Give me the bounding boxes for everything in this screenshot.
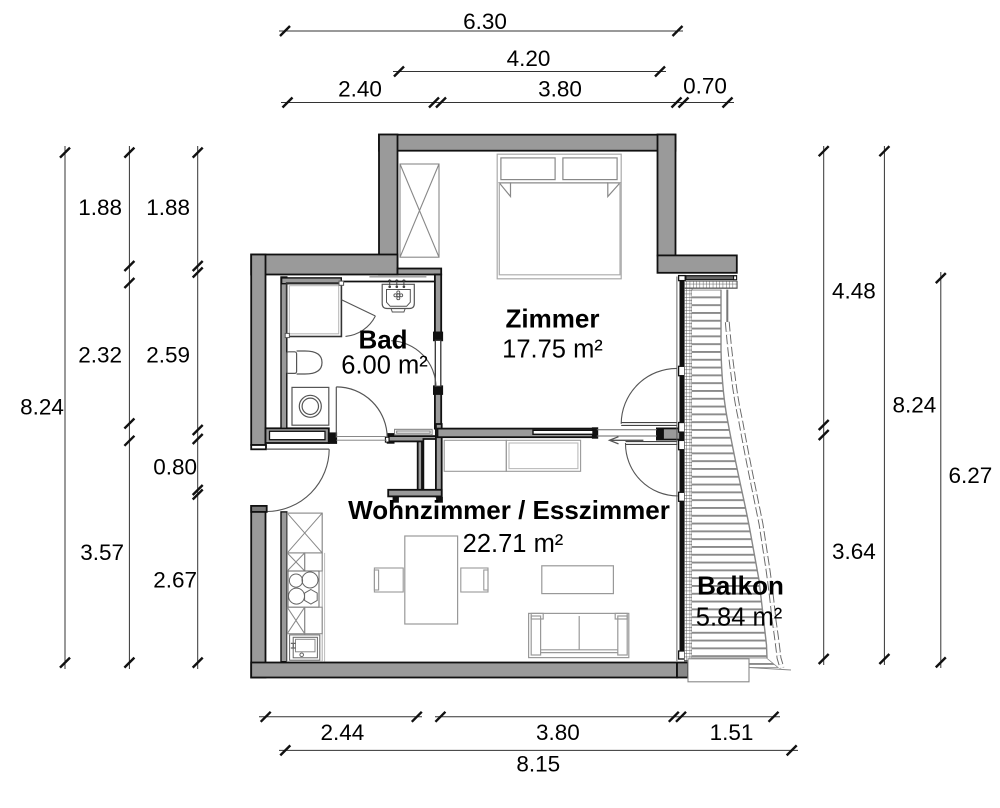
svg-text:1.51: 1.51: [710, 720, 754, 745]
svg-text:1.88: 1.88: [146, 195, 190, 220]
svg-text:2.40: 2.40: [338, 77, 382, 102]
svg-text:6.27: 6.27: [949, 463, 993, 488]
svg-text:22.71 m²: 22.71 m²: [463, 530, 564, 558]
svg-text:4.20: 4.20: [507, 46, 551, 71]
svg-text:3.57: 3.57: [80, 540, 124, 565]
svg-text:Wohnzimmer / Esszimmer: Wohnzimmer / Esszimmer: [348, 495, 670, 525]
svg-text:1.88: 1.88: [78, 195, 122, 220]
svg-text:Bad: Bad: [358, 325, 407, 355]
svg-text:0.80: 0.80: [153, 455, 197, 480]
svg-text:8.24: 8.24: [893, 393, 937, 418]
svg-text:2.67: 2.67: [153, 568, 197, 593]
svg-text:2.32: 2.32: [78, 343, 122, 368]
svg-text:8.24: 8.24: [20, 395, 64, 420]
svg-text:6.00 m²: 6.00 m²: [341, 352, 427, 380]
svg-text:Zimmer: Zimmer: [506, 304, 600, 334]
svg-text:0.70: 0.70: [683, 74, 727, 99]
svg-text:2.44: 2.44: [321, 720, 365, 745]
svg-text:5.84 m²: 5.84 m²: [696, 604, 782, 632]
svg-text:3.80: 3.80: [536, 720, 580, 745]
svg-text:8.15: 8.15: [516, 752, 560, 777]
svg-text:Balkon: Balkon: [697, 571, 784, 601]
svg-text:4.48: 4.48: [832, 278, 876, 303]
svg-text:6.30: 6.30: [463, 9, 507, 34]
svg-text:3.64: 3.64: [832, 539, 876, 564]
svg-text:3.80: 3.80: [538, 77, 582, 102]
svg-text:2.59: 2.59: [146, 343, 190, 368]
svg-text:17.75 m²: 17.75 m²: [502, 336, 603, 364]
